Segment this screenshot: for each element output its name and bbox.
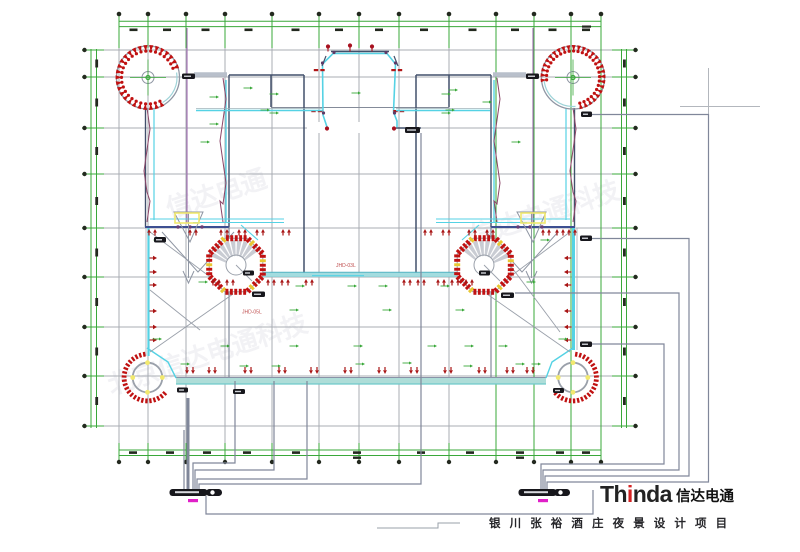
svg-text:Thinda: Thinda — [600, 481, 673, 507]
svg-text:JHD-03L: JHD-03L — [336, 263, 356, 269]
svg-text:银川张裕酒庄夜景设计项目: 银川张裕酒庄夜景设计项目 — [489, 516, 736, 530]
svg-text:信达电通: 信达电通 — [676, 487, 734, 505]
svg-text:信达电通: 信达电通 — [162, 163, 270, 224]
svg-text:JHD-05L: JHD-05L — [242, 310, 262, 316]
